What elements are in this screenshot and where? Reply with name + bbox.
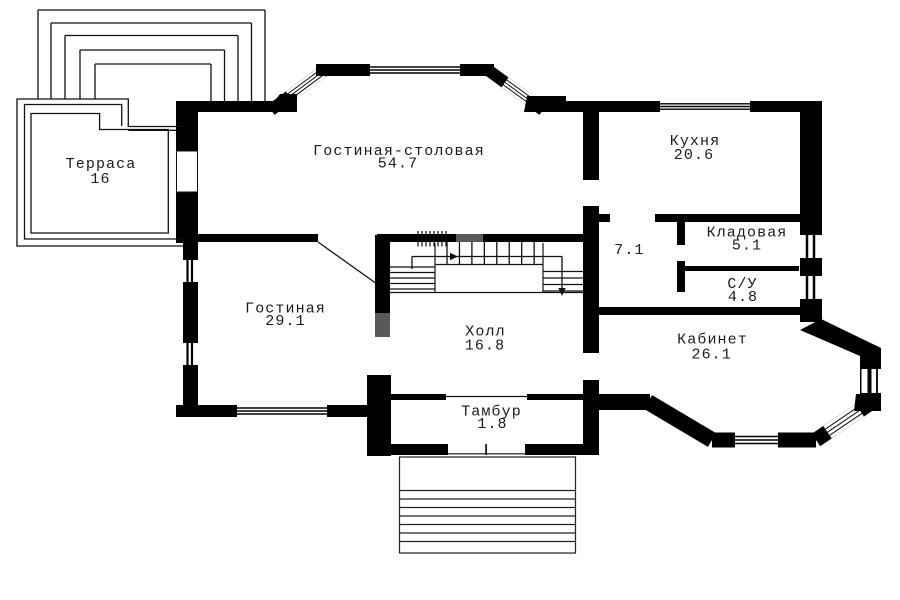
svg-text:4.8: 4.8 [728,289,758,306]
svg-text:5.1: 5.1 [732,238,762,255]
svg-text:20.6: 20.6 [674,147,714,164]
svg-text:7.1: 7.1 [614,242,644,259]
svg-text:1.8: 1.8 [477,416,507,433]
svg-text:16: 16 [90,171,110,188]
svg-text:29.1: 29.1 [265,313,305,330]
svg-text:54.7: 54.7 [378,156,418,173]
svg-text:16.8: 16.8 [465,338,505,355]
svg-text:26.1: 26.1 [691,347,731,364]
